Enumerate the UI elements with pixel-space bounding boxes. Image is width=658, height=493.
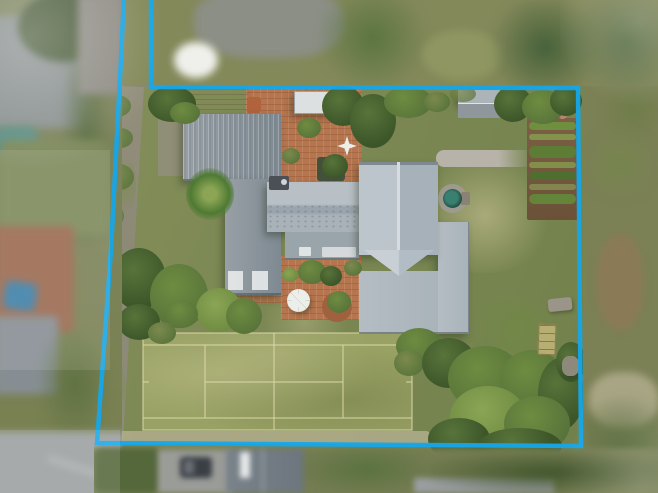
shrub (327, 291, 351, 313)
tennis-court (143, 333, 412, 430)
neighbor-car (2, 280, 38, 312)
garden-row (529, 184, 576, 190)
patio-umbrella (287, 289, 310, 312)
garden-row (529, 146, 576, 158)
aerial-property-photo: document.currentScript.previousElementSi… (0, 0, 658, 493)
shrub (226, 298, 262, 334)
neighbor-lawn (0, 140, 110, 235)
shrub (424, 92, 450, 112)
shrub (344, 260, 362, 276)
palm-tree (186, 168, 234, 220)
stone-bench (547, 297, 572, 312)
shrub (450, 86, 476, 102)
garden-rock (562, 356, 579, 376)
neighbor-roof (226, 449, 304, 493)
neighbor-roof-ridge (262, 449, 264, 493)
rear-extension-roof-lower (359, 271, 438, 334)
shrub (320, 266, 342, 286)
concrete-path (436, 150, 532, 167)
roof-panel-white (228, 271, 243, 290)
garden-row (529, 162, 576, 168)
ac-unit (299, 247, 311, 256)
roof-panel-white (252, 271, 268, 290)
neighbor-greens (40, 330, 110, 440)
shrub (282, 148, 300, 164)
dry-grass-strip (100, 431, 430, 444)
terracotta-pot (247, 97, 261, 113)
shrub (322, 154, 348, 178)
brown-blob (597, 234, 643, 330)
garden-row (529, 172, 576, 180)
shrub (282, 268, 298, 282)
hedge (94, 448, 160, 493)
shrub (394, 350, 424, 376)
spa-pool (443, 189, 462, 208)
shrub (148, 322, 176, 344)
right-wing-ridge (397, 162, 400, 254)
hedge (302, 446, 430, 493)
spa-step (461, 192, 470, 205)
central-roof-ridge-texture (267, 204, 359, 230)
timber-rack (537, 324, 556, 356)
tree-canopy (550, 86, 582, 116)
chimney-flue (281, 179, 287, 185)
garden-row (529, 194, 576, 204)
neighbor-driveway (78, 0, 122, 94)
neighbors-top (122, 0, 658, 86)
neighbors-left (0, 0, 122, 493)
tree-canopy (170, 102, 200, 124)
shrub (297, 118, 321, 138)
green-blob (591, 124, 651, 204)
ac-unit (322, 247, 356, 257)
neighbors-right (583, 86, 658, 493)
neighbor-trees (318, 0, 428, 86)
neighbors-bottom (94, 444, 658, 493)
garden-row (529, 134, 576, 140)
rear-extension-roof (438, 222, 469, 334)
neighbor-trees (430, 452, 658, 493)
garage-roof-texture (183, 114, 281, 179)
neighbor-trees (572, 0, 658, 86)
neighbor-skylight (240, 452, 250, 478)
car-windshield (184, 460, 194, 474)
trampoline (174, 42, 218, 78)
